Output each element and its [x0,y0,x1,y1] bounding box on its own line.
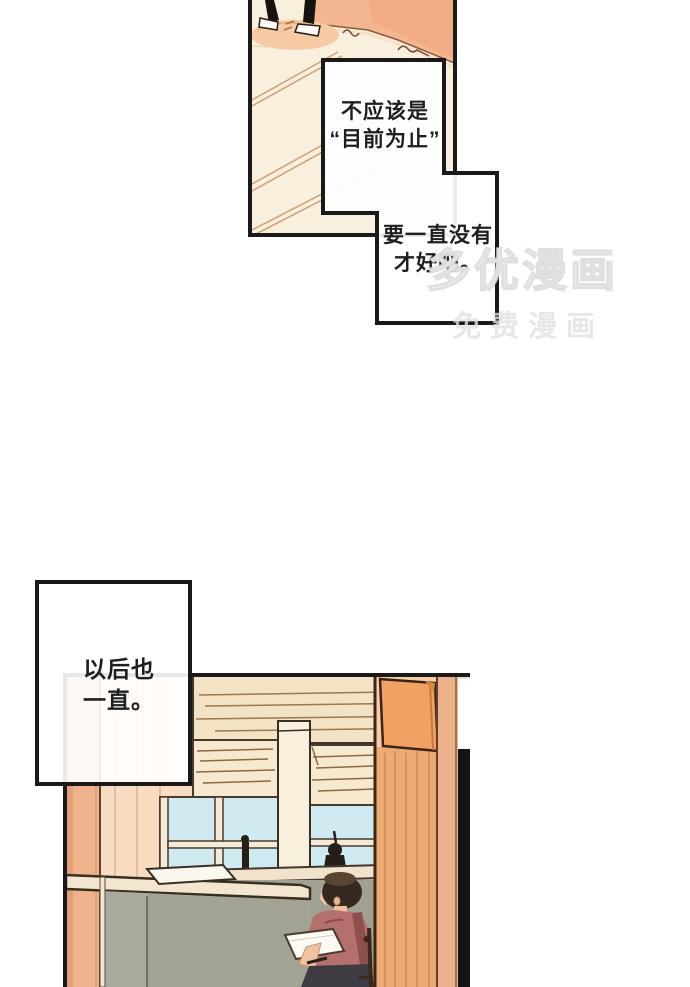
panel-gap [458,679,470,749]
silhouette-distant-person [241,835,249,843]
pants [301,964,374,987]
leg-right [303,0,316,24]
cubicle-partition [66,865,310,987]
ear [334,897,340,905]
partition-frame [100,877,105,987]
window-mullion [168,841,278,848]
speech-bubble-3: 以后也 一直。 [35,580,192,786]
wall-sign [380,679,438,751]
speech-bubble-compound [318,52,502,328]
door-gap-dark [458,749,470,987]
silhouette-near-person [328,843,342,857]
right-door-frame [437,677,458,987]
window-mullion [310,839,375,846]
comic-page: 不应该是 “目前为止” 要一直没有 才好吧。 以后也 一直。 多优漫画 免费漫画 [0,0,690,987]
window-pillar [278,721,310,883]
roller-blind-right [310,745,380,805]
speech-bubble-3-text: 以后也 一直。 [83,654,155,716]
roller-blind-left [193,740,278,797]
